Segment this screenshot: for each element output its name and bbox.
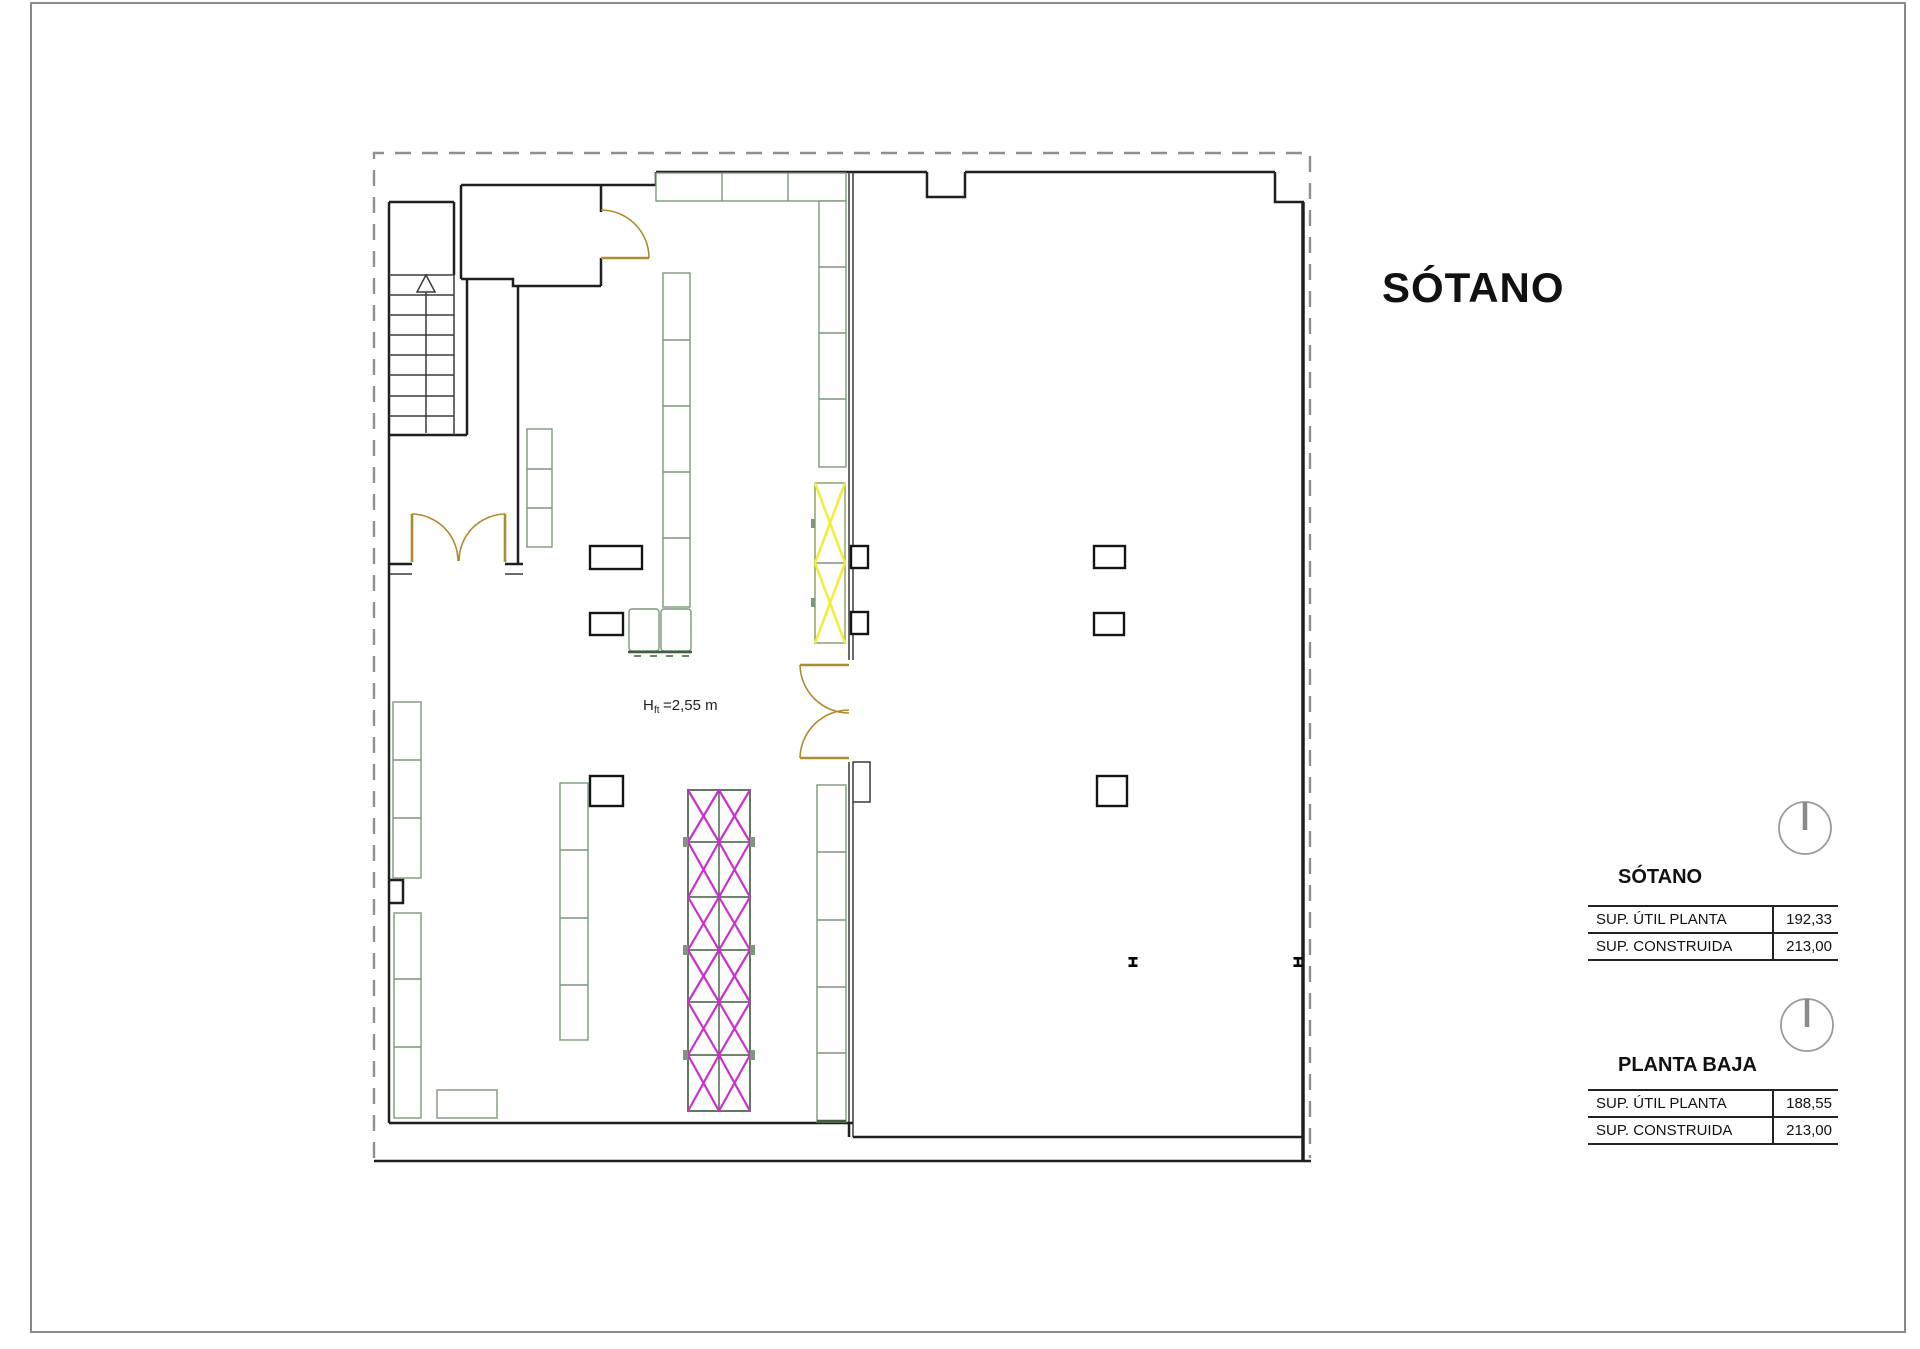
drawing-sheet: { "main_title": "SÓTANO", "plan": { "cle… (0, 0, 1920, 1349)
shelving-units (393, 173, 846, 1122)
page-title: SÓTANO (1382, 264, 1565, 312)
floor-plan-drawing: H ft =2,55 m (0, 0, 1920, 1349)
svg-text:=2,55 m: =2,55 m (663, 697, 718, 714)
area-value: 213,00 (1773, 1117, 1838, 1144)
area-value: 213,00 (1773, 933, 1838, 960)
planta-baja-area-table: SUP. ÚTIL PLANTA 188,55 SUP. CONSTRUIDA … (1588, 1089, 1838, 1145)
steel-column-icon (1129, 957, 1303, 967)
stair-direction-arrow (417, 275, 435, 433)
staircase (389, 275, 454, 435)
area-label: SUP. CONSTRUIDA (1588, 933, 1773, 960)
area-label: SUP. CONSTRUIDA (1588, 1117, 1773, 1144)
table-row: SUP. ÚTIL PLANTA 188,55 (1588, 1090, 1838, 1117)
area-label: SUP. ÚTIL PLANTA (1588, 906, 1773, 933)
area-value: 192,33 (1773, 906, 1838, 933)
orientation-dial-icon (1777, 800, 1833, 856)
entry-double-door (412, 514, 505, 562)
orientation-dial-icon (1779, 997, 1835, 1053)
magenta-hatched-rack (683, 790, 755, 1111)
svg-text:ft: ft (654, 705, 660, 716)
area-value: 188,55 (1773, 1090, 1838, 1117)
clear-height-label: H ft =2,55 m (643, 697, 718, 716)
sotano-area-summary: SÓTANO SUP. ÚTIL PLANTA 192,33 SUP. CONS… (1588, 866, 1838, 961)
table-row: SUP. ÚTIL PLANTA 192,33 (1588, 906, 1838, 933)
yellow-hatched-shaft (811, 483, 845, 643)
planta-baja-table-title: PLANTA BAJA (1618, 1054, 1838, 1077)
svg-text:H: H (643, 697, 654, 714)
table-row: SUP. CONSTRUIDA 213,00 (1588, 1117, 1838, 1144)
sotano-area-table: SUP. ÚTIL PLANTA 192,33 SUP. CONSTRUIDA … (1588, 905, 1838, 961)
divider-double-door (800, 665, 849, 758)
area-label: SUP. ÚTIL PLANTA (1588, 1090, 1773, 1117)
planta-baja-area-summary: PLANTA BAJA SUP. ÚTIL PLANTA 188,55 SUP.… (1588, 1054, 1838, 1145)
vestibule-door (601, 210, 649, 258)
sotano-table-title: SÓTANO (1618, 866, 1838, 889)
table-row: SUP. CONSTRUIDA 213,00 (1588, 933, 1838, 960)
